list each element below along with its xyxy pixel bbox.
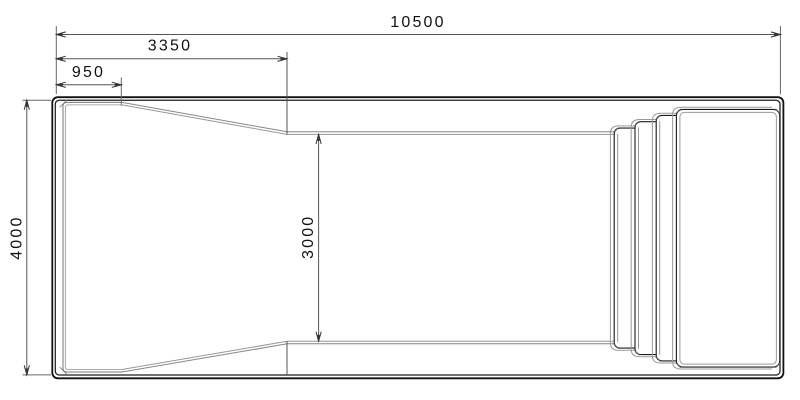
svg-text:10500: 10500 — [390, 14, 446, 31]
svg-text:950: 950 — [72, 64, 105, 81]
svg-text:3000: 3000 — [300, 215, 317, 259]
svg-text:4000: 4000 — [8, 215, 25, 259]
svg-text:3350: 3350 — [148, 38, 192, 55]
